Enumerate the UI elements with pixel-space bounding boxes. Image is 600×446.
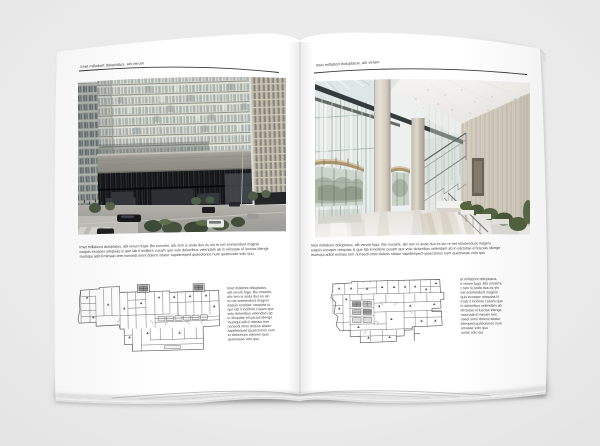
svg-text:quamusae volo quu: quamusae volo quu bbox=[228, 337, 259, 341]
